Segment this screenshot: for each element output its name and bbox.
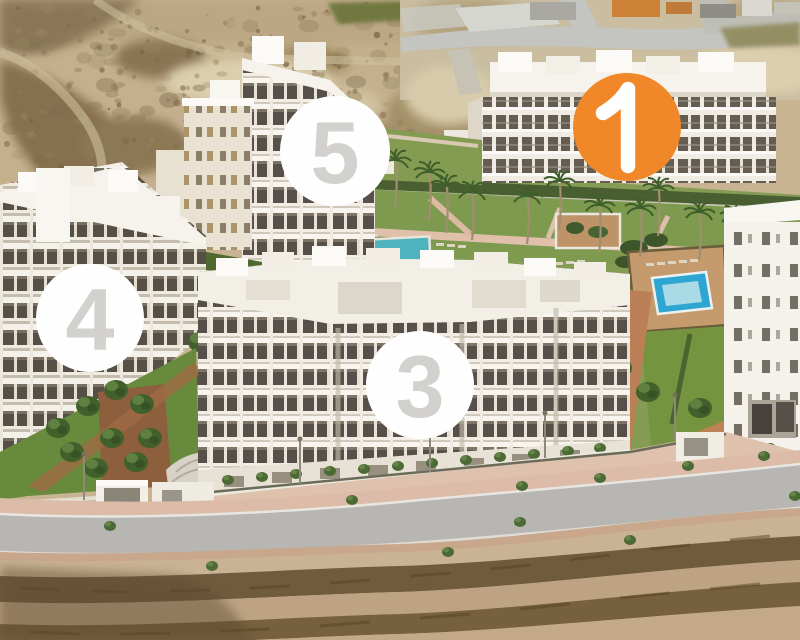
svg-text:4: 4	[66, 270, 115, 369]
svg-text:3: 3	[396, 337, 445, 436]
svg-text:5: 5	[311, 103, 360, 202]
